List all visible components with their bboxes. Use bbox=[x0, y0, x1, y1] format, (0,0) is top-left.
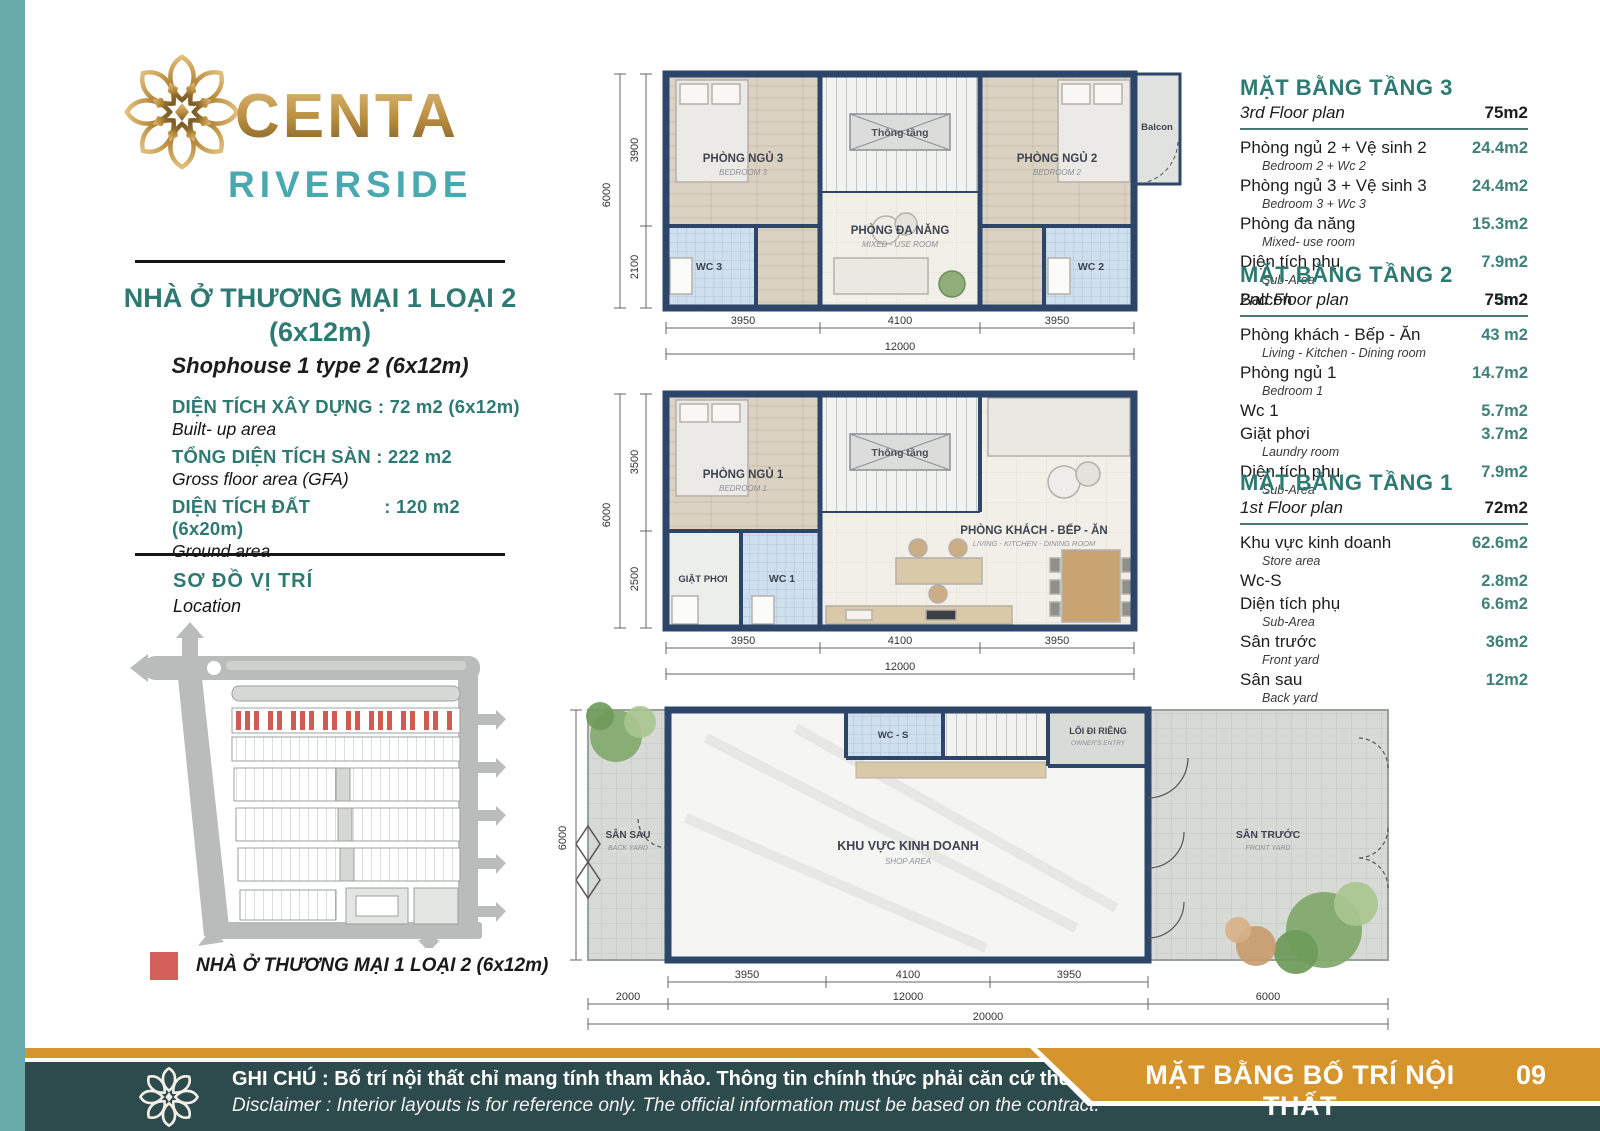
room-label: PHÒNG NGỦ 1 bbox=[703, 468, 784, 481]
room-label-en: BEDROOM 2 bbox=[1033, 168, 1082, 177]
table-row: Phòng ngủ 2 + Vệ sinh 224.4m2Bedroom 2 +… bbox=[1240, 138, 1528, 173]
room-label: PHÒNG ĐA NĂNG bbox=[851, 224, 950, 237]
room-area: 43 m2 bbox=[1481, 326, 1528, 345]
room-name-en: Back yard bbox=[1262, 691, 1528, 705]
room-name-en: Mixed- use room bbox=[1262, 235, 1528, 249]
table-divider bbox=[1240, 523, 1528, 525]
spec-value: : 72 m2 (6x12m) bbox=[378, 396, 520, 417]
footer-note-en: Disclaimer : Interior layouts is for ref… bbox=[232, 1095, 1100, 1117]
centa-logo-mark bbox=[127, 57, 237, 167]
location-map bbox=[128, 618, 512, 948]
dim-label: 3950 bbox=[735, 969, 759, 981]
room-label: WC - S bbox=[878, 730, 909, 741]
table-total: 75m2 bbox=[1485, 103, 1528, 123]
unit-title-line2: (6x12m) bbox=[110, 315, 530, 349]
room-name: Sân sau bbox=[1240, 670, 1302, 690]
room-name: Phòng khách - Bếp - Ăn bbox=[1240, 325, 1421, 345]
room-area: 6.6m2 bbox=[1481, 595, 1528, 614]
table-row: Khu vực kinh doanh62.6m2Store area bbox=[1240, 533, 1528, 568]
room-label: GIẶT PHƠI bbox=[678, 574, 727, 585]
room-name-en: Store area bbox=[1262, 554, 1528, 568]
room-name-en: Bedroom 1 bbox=[1262, 384, 1528, 398]
footer-banner-title: MẶT BẰNG BỐ TRÍ NỘI THẤT bbox=[1110, 1060, 1490, 1122]
table-row: Phòng khách - Bếp - Ăn43 m2Living - Kitc… bbox=[1240, 325, 1528, 360]
floor2-plan: PHÒNG NGỦ 1 BEDROOM 1 Thông tầng PHÒNG K… bbox=[596, 382, 1236, 692]
brand-logo: CENTA RIVERSIDE bbox=[115, 45, 535, 215]
room-area: 12m2 bbox=[1486, 671, 1528, 690]
room-label: WC 1 bbox=[769, 573, 795, 585]
room-area: 3.7m2 bbox=[1481, 425, 1528, 444]
table-title: MẶT BẰNG TẦNG 1 bbox=[1240, 470, 1528, 496]
table-title: MẶT BẰNG TẦNG 2 bbox=[1240, 262, 1528, 288]
dim-label: 20000 bbox=[973, 1011, 1004, 1023]
table-row: Wc 15.7m2 bbox=[1240, 401, 1528, 421]
room-label: KHU VỰC KINH DOANH bbox=[837, 839, 979, 853]
room-label: PHÒNG KHÁCH - BẾP - ĂN bbox=[960, 524, 1107, 537]
legend-label: NHÀ Ở THƯƠNG MẠI 1 LOẠI 2 (6x12m) bbox=[196, 955, 548, 977]
table-subtitle: 2nd Floor plan bbox=[1240, 290, 1349, 310]
room-label-en: BEDROOM 3 bbox=[719, 168, 768, 177]
table-title: MẶT BẰNG TẦNG 3 bbox=[1240, 75, 1528, 101]
room-area: 24.4m2 bbox=[1472, 177, 1528, 196]
dim-label: 2000 bbox=[616, 991, 640, 1003]
room-area: 24.4m2 bbox=[1472, 139, 1528, 158]
footer-note-vi: GHI CHÚ : Bố trí nội thất chỉ mang tính … bbox=[232, 1068, 1186, 1091]
dim-label: 6000 bbox=[601, 183, 613, 207]
table-row: Sân sau12m2Back yard bbox=[1240, 670, 1528, 705]
dim-label: 3950 bbox=[731, 635, 755, 647]
room-label: LỐI ĐI RIÊNG bbox=[1069, 725, 1127, 736]
dim-label: 3950 bbox=[1057, 969, 1081, 981]
spec-label: DIỆN TÍCH ĐẤT bbox=[172, 496, 310, 517]
legend-color-swatch bbox=[150, 952, 178, 980]
table-row: Sân trước36m2Front yard bbox=[1240, 632, 1528, 667]
map-right-stubs bbox=[478, 710, 506, 922]
room-name-en: Living - Kitchen - Dining room bbox=[1262, 346, 1528, 360]
room-label: WC 2 bbox=[1078, 261, 1104, 273]
room-name: Phòng ngủ 2 + Vệ sinh 2 bbox=[1240, 138, 1427, 158]
dim-label: 2100 bbox=[629, 255, 641, 279]
room-label: Thông tầng bbox=[871, 447, 928, 459]
table-subtitle: 3rd Floor plan bbox=[1240, 103, 1345, 123]
spec-built-up: DIỆN TÍCH XÂY DỰNG : 72 m2 (6x12m) Built… bbox=[172, 396, 532, 440]
room-name: Phòng ngủ 3 + Vệ sinh 3 bbox=[1240, 176, 1427, 196]
spec-label: DIỆN TÍCH XÂY DỰNG bbox=[172, 396, 373, 417]
room-name: Giặt phơi bbox=[1240, 424, 1310, 444]
dim-label: 3950 bbox=[1045, 315, 1069, 327]
floor3-plan: PHÒNG NGỦ 3 BEDROOM 3 WC 3 Thông tầng PH… bbox=[596, 62, 1236, 372]
room-name: Sân trước bbox=[1240, 632, 1316, 652]
spec-gfa: TỔNG DIỆN TÍCH SÀN : 222 m2 Gross floor … bbox=[172, 446, 532, 490]
room-name: Diện tích phụ bbox=[1240, 594, 1340, 614]
room-name-en: Front yard bbox=[1262, 653, 1528, 667]
room-label: Balcon bbox=[1141, 122, 1173, 133]
room-label: SÂN SAU bbox=[605, 828, 650, 841]
room-area: 62.6m2 bbox=[1472, 534, 1528, 553]
room-area: 2.8m2 bbox=[1481, 572, 1528, 591]
room-label-en: BEDROOM 1 bbox=[719, 484, 767, 493]
location-subtitle: Location bbox=[173, 596, 241, 617]
table-row: Giặt phơi3.7m2Laundry room bbox=[1240, 424, 1528, 459]
dim-label: 6000 bbox=[557, 826, 569, 850]
room-label-en: LIVING - KITCHEN - DINING ROOM bbox=[973, 539, 1096, 548]
spec-sub: Built- up area bbox=[172, 419, 532, 440]
room-label-en: OWNER'S ENTRY bbox=[1071, 740, 1126, 747]
left-accent-strip bbox=[0, 0, 25, 1131]
floor1-plan: SÂN SAU BACK YARD KHU VỰC KINH DOANH SHO… bbox=[556, 698, 1406, 1031]
divider-location bbox=[135, 553, 505, 556]
room-name-en: Sub-Area bbox=[1262, 615, 1528, 629]
spec-sub: Ground area bbox=[172, 541, 532, 562]
brochure-page: CENTA RIVERSIDE NHÀ Ở THƯƠNG MẠI 1 LOẠI … bbox=[0, 0, 1600, 1131]
room-name-en: Bedroom 2 + Wc 2 bbox=[1262, 159, 1528, 173]
room-label-en: SHOP AREA bbox=[885, 857, 931, 866]
dim-label: 12000 bbox=[885, 341, 916, 353]
spec-sub: Gross floor area (GFA) bbox=[172, 469, 532, 490]
spec-label: TỔNG DIỆN TÍCH SÀN bbox=[172, 446, 371, 467]
dim-label: 4100 bbox=[888, 315, 912, 327]
dim-label: 6000 bbox=[601, 503, 613, 527]
room-label: PHÒNG NGỦ 3 bbox=[703, 152, 784, 165]
dim-label: 12000 bbox=[893, 991, 924, 1003]
table-subtitle: 1st Floor plan bbox=[1240, 498, 1343, 518]
room-name: Wc 1 bbox=[1240, 401, 1279, 421]
unit-title-line1: NHÀ Ở THƯƠNG MẠI 1 LOẠI 2 bbox=[110, 281, 530, 315]
room-label-en: MIXED - USE ROOM bbox=[862, 240, 938, 249]
room-name: Phòng ngủ 1 bbox=[1240, 363, 1336, 383]
table-total: 72m2 bbox=[1485, 498, 1528, 518]
page-number: 09 bbox=[1516, 1060, 1546, 1091]
room-name: Phòng đa năng bbox=[1240, 214, 1355, 234]
dim-label: 3950 bbox=[731, 315, 755, 327]
room-area: 36m2 bbox=[1486, 633, 1528, 652]
divider-top bbox=[135, 260, 505, 263]
dim-label: 4100 bbox=[896, 969, 920, 981]
map-legend: NHÀ Ở THƯƠNG MẠI 1 LOẠI 2 (6x12m) bbox=[150, 952, 548, 980]
dim-label: 3950 bbox=[1045, 635, 1069, 647]
room-name-en: Bedroom 3 + Wc 3 bbox=[1262, 197, 1528, 211]
table-row: Wc-S2.8m2 bbox=[1240, 571, 1528, 591]
room-label-en: FRONT YARD bbox=[1246, 845, 1291, 852]
brand-name: CENTA bbox=[235, 82, 459, 151]
unit-subtitle: Shophouse 1 type 2 (6x12m) bbox=[110, 353, 530, 379]
room-name-en: Laundry room bbox=[1262, 445, 1528, 459]
table-row: Phòng ngủ 114.7m2Bedroom 1 bbox=[1240, 363, 1528, 398]
room-name: Wc-S bbox=[1240, 571, 1282, 591]
room-label: Thông tầng bbox=[871, 127, 928, 139]
dim-label: 3900 bbox=[629, 138, 641, 162]
floor1-table: MẶT BẰNG TẦNG 1 1st Floor plan72m2 Khu v… bbox=[1240, 470, 1528, 708]
room-area: 14.7m2 bbox=[1472, 364, 1528, 383]
location-title: SƠ ĐỒ VỊ TRÍ bbox=[173, 570, 313, 593]
table-divider bbox=[1240, 128, 1528, 130]
dim-label: 12000 bbox=[885, 661, 916, 673]
table-divider bbox=[1240, 315, 1528, 317]
table-total: 75m2 bbox=[1485, 290, 1528, 310]
table-row: Phòng ngủ 3 + Vệ sinh 324.4m2Bedroom 3 +… bbox=[1240, 176, 1528, 211]
brand-subname: RIVERSIDE bbox=[228, 164, 472, 205]
floor2-table: MẶT BẰNG TẦNG 2 2nd Floor plan75m2 Phòng… bbox=[1240, 262, 1528, 500]
spec-list: DIỆN TÍCH XÂY DỰNG : 72 m2 (6x12m) Built… bbox=[172, 396, 532, 568]
room-area: 5.7m2 bbox=[1481, 402, 1528, 421]
footer-logo-icon bbox=[138, 1066, 200, 1128]
map-blocks bbox=[232, 686, 460, 924]
dim-label: 2500 bbox=[629, 567, 641, 591]
room-label-en: BACK YARD bbox=[608, 845, 648, 852]
room-area: 15.3m2 bbox=[1472, 215, 1528, 234]
spec-value: : 222 m2 bbox=[376, 446, 452, 467]
dim-label: 4100 bbox=[888, 635, 912, 647]
table-row: Phòng đa năng15.3m2Mixed- use room bbox=[1240, 214, 1528, 249]
room-label: WC 3 bbox=[696, 261, 722, 273]
dim-label: 3500 bbox=[629, 450, 641, 474]
dim-label: 6000 bbox=[1256, 991, 1280, 1003]
table-row: Diện tích phụ6.6m2Sub-Area bbox=[1240, 594, 1528, 629]
room-label: PHÒNG NGỦ 2 bbox=[1017, 152, 1098, 165]
room-name: Khu vực kinh doanh bbox=[1240, 533, 1391, 553]
room-label: SÂN TRƯỚC bbox=[1236, 828, 1301, 841]
